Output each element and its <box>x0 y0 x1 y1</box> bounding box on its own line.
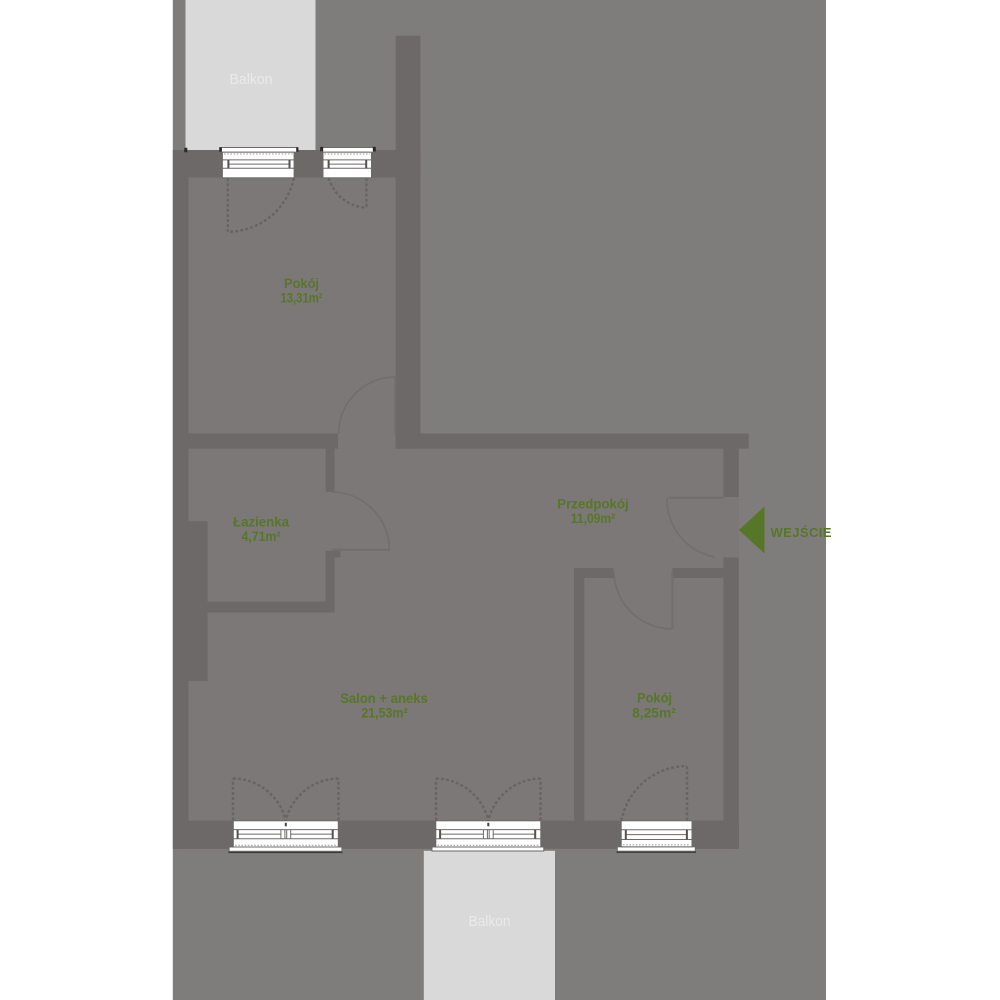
svg-text:Salon + aneks: Salon + aneks <box>340 691 428 706</box>
svg-text:Pokój: Pokój <box>637 691 672 706</box>
svg-text:Balkon: Balkon <box>230 72 273 88</box>
svg-text:13,31m²: 13,31m² <box>281 291 323 306</box>
svg-text:11,09m²: 11,09m² <box>571 511 616 526</box>
svg-text:Łazienka: Łazienka <box>233 515 289 530</box>
svg-text:WEJŚCIE: WEJŚCIE <box>771 525 832 540</box>
svg-text:8,25m²: 8,25m² <box>632 706 676 721</box>
svg-text:4,71m²: 4,71m² <box>242 529 281 544</box>
svg-text:Pokój: Pokój <box>284 276 319 291</box>
svg-text:21,53m²: 21,53m² <box>361 706 408 721</box>
svg-text:Balkon: Balkon <box>469 914 511 930</box>
svg-text:Przedpokój: Przedpokój <box>557 497 628 512</box>
